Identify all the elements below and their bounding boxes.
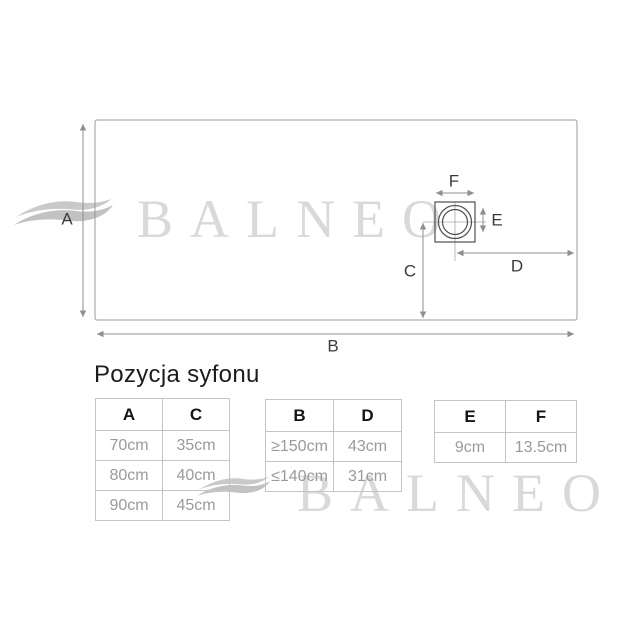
table-header-cell: B bbox=[266, 400, 334, 432]
table-cell: 35cm bbox=[163, 431, 230, 461]
table-header-cell: F bbox=[506, 401, 577, 433]
table-cell: 9cm bbox=[435, 433, 506, 463]
dim-label-f: F bbox=[449, 173, 459, 190]
dim-label-d: D bbox=[511, 258, 523, 275]
section-heading: Pozycja syfonu bbox=[94, 361, 260, 389]
table-cell: 13.5cm bbox=[506, 433, 577, 463]
shower-tray-diagram bbox=[0, 0, 640, 640]
table-row: 80cm 40cm bbox=[96, 461, 230, 491]
table-cell: ≥150cm bbox=[266, 432, 334, 462]
table-cell: 45cm bbox=[163, 491, 230, 521]
dim-label-b: B bbox=[327, 338, 338, 355]
table-cell: 70cm bbox=[96, 431, 163, 461]
dims-table-ac: A C 70cm 35cm 80cm 40cm 90cm 45cm bbox=[95, 398, 230, 521]
table-header-cell: A bbox=[96, 399, 163, 431]
table-cell: ≤140cm bbox=[266, 462, 334, 492]
dims-table-ef: E F 9cm 13.5cm bbox=[434, 400, 577, 463]
table-row: 70cm 35cm bbox=[96, 431, 230, 461]
table-cell: 80cm bbox=[96, 461, 163, 491]
table-row: ≤140cm 31cm bbox=[266, 462, 402, 492]
table-cell: 43cm bbox=[334, 432, 402, 462]
table-cell: 90cm bbox=[96, 491, 163, 521]
dim-label-c: C bbox=[404, 263, 416, 280]
table-row: 9cm 13.5cm bbox=[435, 433, 577, 463]
dims-table-bd: B D ≥150cm 43cm ≤140cm 31cm bbox=[265, 399, 402, 492]
table-cell: 31cm bbox=[334, 462, 402, 492]
table-header-cell: E bbox=[435, 401, 506, 433]
tray-outline bbox=[95, 120, 577, 320]
table-header-cell: C bbox=[163, 399, 230, 431]
table-row: ≥150cm 43cm bbox=[266, 432, 402, 462]
table-row: 90cm 45cm bbox=[96, 491, 230, 521]
dim-label-a: A bbox=[61, 211, 72, 228]
table-header-cell: D bbox=[334, 400, 402, 432]
dim-label-e: E bbox=[491, 212, 502, 229]
table-cell: 40cm bbox=[163, 461, 230, 491]
product-dimension-diagram-page: BALNEO BALNEO A B C D E F Poz bbox=[0, 0, 640, 640]
